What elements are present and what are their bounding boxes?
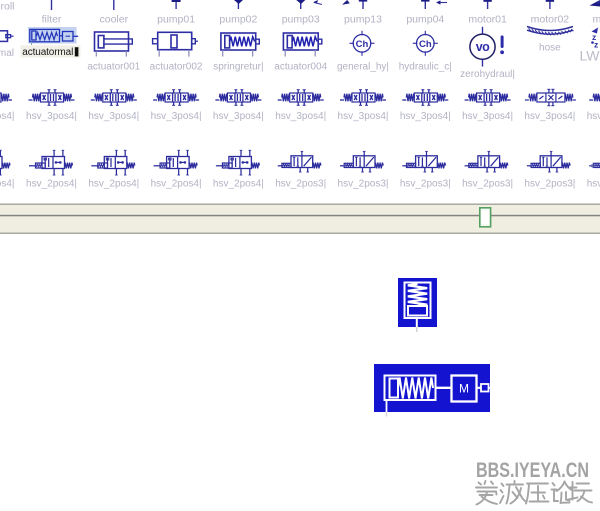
svg-text:hsv_2pos3|: hsv_2pos3|	[462, 179, 513, 190]
svg-text:hsv_2pos4|: hsv_2pos4|	[151, 179, 202, 190]
svg-text:LW: LW	[580, 48, 600, 64]
svg-text:zerohydraul|: zerohydraul|	[460, 69, 515, 80]
svg-text:motor02: motor02	[531, 13, 570, 25]
svg-text:hsv_2pos4|: hsv_2pos4|	[213, 179, 264, 190]
svg-text:pump02: pump02	[219, 13, 257, 25]
svg-text:hsv_3pos4|: hsv_3pos4|	[151, 111, 202, 122]
svg-text:hsv_3pos4|: hsv_3pos4|	[88, 111, 139, 122]
svg-text:actuator001: actuator001	[87, 62, 140, 73]
svg-text:actuator004: actuator004	[274, 62, 327, 73]
svg-text:hsv_2pos3|: hsv_2pos3|	[275, 179, 326, 190]
svg-text:cooler: cooler	[99, 13, 128, 25]
svg-text:hsv_3pos4|: hsv_3pos4|	[213, 111, 264, 122]
svg-text:hsv_3pos4|: hsv_3pos4|	[275, 111, 326, 122]
svg-text:hsv_2pos3|: hsv_2pos3|	[338, 179, 389, 190]
svg-text:actuator002: actuator002	[150, 62, 203, 73]
svg-text:hsv_2pos4|: hsv_2pos4|	[0, 179, 14, 190]
svg-text:pump03: pump03	[282, 13, 320, 25]
svg-text:BBS.IYEYA.CN: BBS.IYEYA.CN	[476, 458, 589, 482]
svg-text:pump01: pump01	[157, 13, 195, 25]
svg-text:hsv_3pos4|: hsv_3pos4|	[400, 111, 451, 122]
svg-text:hsv_3pos4|: hsv_3pos4|	[524, 111, 575, 122]
svg-text:pump13: pump13	[344, 13, 382, 25]
svg-text:vo: vo	[476, 40, 490, 54]
svg-text:hydraulic_c|: hydraulic_c|	[399, 62, 452, 73]
svg-text:actuatormal: actuatormal	[22, 47, 73, 58]
svg-text:springretur|: springretur|	[213, 62, 263, 73]
svg-text:hsv_3pos4|: hsv_3pos4|	[26, 111, 77, 122]
svg-text:hsv_2pos4|: hsv_2pos4|	[26, 179, 77, 190]
svg-text:roll: roll	[0, 1, 14, 13]
svg-text:hsv_3pos4|: hsv_3pos4|	[338, 111, 389, 122]
svg-text:filter: filter	[42, 13, 62, 25]
svg-text:hsv_3pos4|: hsv_3pos4|	[0, 111, 14, 122]
svg-text:hsv_2pos3|: hsv_2pos3|	[524, 179, 575, 190]
svg-text:motor01: motor01	[468, 13, 507, 25]
svg-text:mal: mal	[0, 48, 14, 59]
svg-text:general_hy|: general_hy|	[337, 62, 389, 73]
svg-text:hsv_3pos4|: hsv_3pos4|	[462, 111, 513, 122]
svg-text:hsv_3pos4|: hsv_3pos4|	[587, 111, 600, 122]
svg-text:hose: hose	[539, 43, 561, 54]
svg-text:hsv_2pos3|: hsv_2pos3|	[587, 179, 600, 190]
svg-text:m: m	[593, 13, 600, 25]
svg-text:pump04: pump04	[406, 13, 444, 25]
svg-text:hsv_2pos4|: hsv_2pos4|	[88, 179, 139, 190]
svg-text:hsv_2pos3|: hsv_2pos3|	[400, 179, 451, 190]
svg-text:M: M	[459, 382, 469, 396]
